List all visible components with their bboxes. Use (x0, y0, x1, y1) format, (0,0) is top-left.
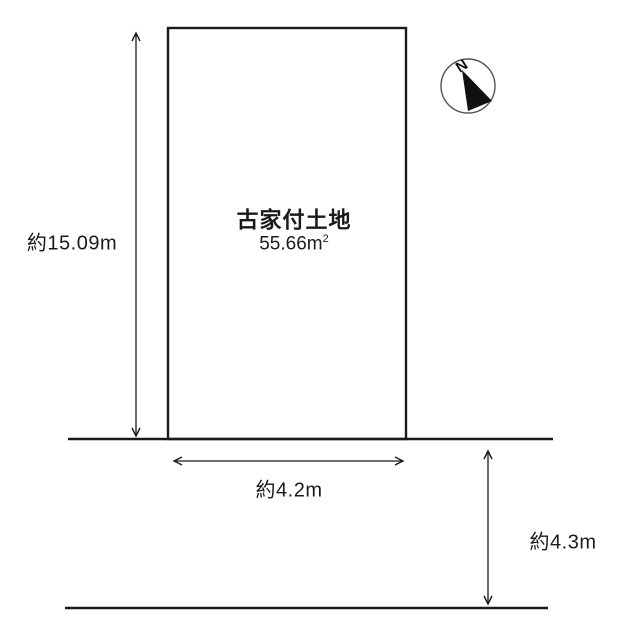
plot-label-block: 古家付土地 55.66m2 (236, 208, 351, 255)
compass-icon: N (441, 56, 495, 113)
plot-title: 古家付土地 (236, 208, 351, 232)
road-width-dimension-label: 約4.3m (530, 526, 597, 555)
frontage-dimension-label: 約4.2m (256, 474, 323, 503)
plot-area-exponent: 2 (323, 233, 329, 245)
plot-area-value: 55.66m (259, 234, 322, 255)
land-plot-diagram: N 古家付土地 55.66m2 約15.09m 約4.2m 約4.3m (0, 0, 627, 640)
plot-area: 55.66m2 (236, 235, 351, 256)
depth-dimension-label: 約15.09m (27, 227, 117, 256)
